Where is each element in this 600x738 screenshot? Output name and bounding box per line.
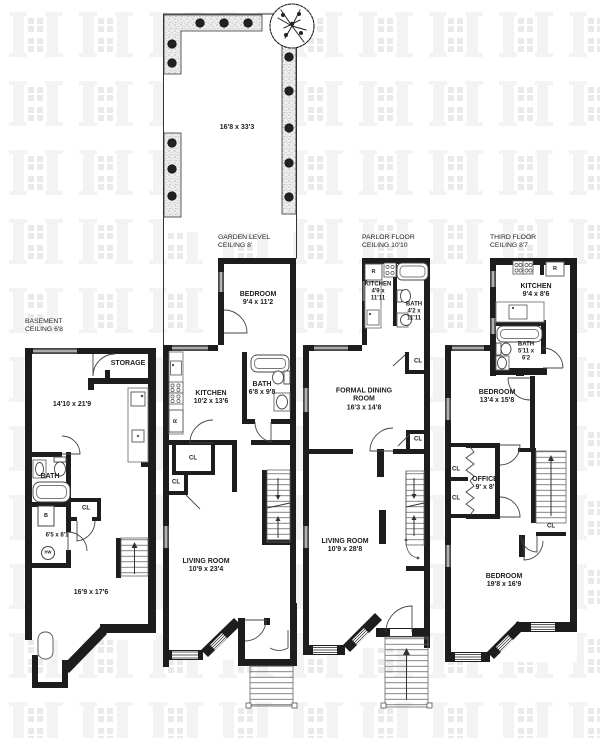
garden-kitchen-label: KITCHEN 10'2 x 13'6 [194, 390, 228, 407]
third-bedroom2-name: BEDROOM [486, 573, 523, 581]
basement-main-dims-label: 14'10 x 21'9 [53, 401, 91, 409]
garden-closet2-label: CL [172, 479, 180, 486]
third-kitchen-label: KITCHEN 9'4 x 8'6 [520, 283, 551, 300]
parlor-kitchen-label: KITCHEN 4'9 x 11'11 [365, 281, 392, 302]
basement-stairs [121, 538, 148, 576]
third-stairs [536, 451, 566, 523]
third-bath-dims2: 6'2 [518, 356, 534, 363]
basement-closet-label: CL [82, 505, 90, 512]
garden-bath-label: BATH 6'8 x 9'8 [249, 381, 276, 398]
garden-closet1-label: CL [189, 455, 197, 462]
third-bath-dims1: 5'11 x [518, 348, 534, 355]
third-kitchen-dims: 9'4 x 8'6 [520, 291, 551, 299]
parlor-living-name: LIVING ROOM [321, 538, 368, 546]
parlor-bath-dims2: 11'11 [406, 316, 422, 323]
third-office-label: OFFICE 9' x 8' [472, 476, 498, 493]
storage-label: STORAGE [111, 360, 146, 368]
parlor-bath-label: BATH 4'2 x 11'11 [406, 301, 422, 322]
parlor-refrigerator-label: R [372, 269, 376, 275]
third-kitchen-name: KITCHEN [520, 283, 551, 291]
parlor-title: PARLOR FLOOR [362, 234, 415, 242]
parlor-stoop-stairs [381, 637, 432, 708]
third-header: THIRD FLOOR CEILING 8'7 [490, 234, 536, 251]
third-office-name: OFFICE [472, 476, 498, 484]
garden-bath-dims: 6'8 x 9'8 [249, 389, 276, 397]
parlor-bath-dims1: 4'2 x [406, 308, 422, 315]
parlor-kitchen-name: KITCHEN [365, 281, 392, 288]
third-closet2-label: CL [452, 495, 460, 502]
basement-bath-label: BATH [41, 473, 60, 481]
third-bedroom1-dims: 13'4 x 15'8 [479, 397, 516, 405]
garden-kitchen-name: KITCHEN [194, 390, 228, 398]
garden-bedroom-name: BEDROOM [240, 291, 277, 299]
third-title: THIRD FLOOR [490, 234, 536, 242]
parlor-dining-label: FORMAL DINING ROOM 16'3 x 14'8 [336, 388, 392, 413]
third-office-dims: 9' x 8' [472, 484, 498, 492]
third-closet3-label: CL [547, 523, 555, 530]
third-ceiling: CEILING 8'7 [490, 242, 536, 250]
parlor-closet1-label: CL [414, 358, 422, 365]
garden-bedroom-dims: 9'4 x 11'2 [240, 299, 277, 307]
third-bedroom2-label: BEDROOM 19'8 x 16'9 [486, 573, 523, 590]
basement-entry-door [38, 632, 53, 659]
garden-title: GARDEN LEVEL [218, 234, 270, 242]
parlor-kitchen-dims2: 11'11 [365, 296, 392, 303]
garden-stoop-stairs [246, 666, 297, 708]
hot-water-label: HW [45, 551, 52, 556]
garden-header: GARDEN LEVEL CEILING 8' [218, 234, 270, 251]
parlor-bath-name: BATH [406, 301, 422, 308]
third-bath-name: BATH [518, 341, 534, 348]
tree-icon [270, 4, 314, 48]
garden-living-label: LIVING ROOM 10'9 x 23'4 [182, 558, 229, 575]
third-closet1-label: CL [452, 466, 460, 473]
basement-header: BASEMENT CEILING 6'8 [25, 318, 63, 335]
parlor-ceiling: CEILING 10'10 [362, 242, 415, 250]
floorplan-canvas: 16'8 x 33'3 BASEMENT CEILING 6'8 GARDEN … [0, 0, 600, 738]
garden-bath-name: BATH [249, 381, 276, 389]
floorplan-drawing [0, 0, 600, 738]
garden-living-dims: 10'9 x 23'4 [182, 566, 229, 574]
basement-rec-dims-label: 16'9 x 17'6 [74, 589, 108, 597]
boiler-label: B [44, 513, 48, 519]
garden-refrigerator-label: R [173, 419, 179, 423]
garden-ceiling: CEILING 8' [218, 242, 270, 250]
garden-bedroom-label: BEDROOM 9'4 x 11'2 [240, 291, 277, 308]
parlor-closet2-label: CL [414, 436, 422, 443]
garden-kitchen-dims: 10'2 x 13'6 [194, 398, 228, 406]
parlor-dining-name2: ROOM [336, 396, 392, 404]
parlor-dining-dims: 16'3 x 14'8 [336, 404, 392, 412]
third-bedroom2-dims: 19'8 x 16'9 [486, 581, 523, 589]
third-bath-label: BATH 5'11 x 6'2 [518, 341, 534, 362]
parlor-kitchen-dims1: 4'9 x [365, 288, 392, 295]
garden-stairs [267, 470, 290, 542]
parlor-header: PARLOR FLOOR CEILING 10'10 [362, 234, 415, 251]
basement-counter [128, 388, 148, 462]
basement-ceiling: CEILING 6'8 [25, 326, 63, 334]
third-bedroom1-name: BEDROOM [479, 389, 516, 397]
basement-title: BASEMENT [25, 318, 63, 326]
parlor-dining-name1: FORMAL DINING [336, 388, 392, 396]
basement-window [33, 349, 77, 353]
third-bedroom1-label: BEDROOM 13'4 x 15'8 [479, 389, 516, 406]
yard-dims-label: 16'8 x 33'3 [220, 124, 254, 132]
parlor-living-label: LIVING ROOM 10'9 x 28'8 [321, 538, 368, 555]
garden-living-name: LIVING ROOM [182, 558, 229, 566]
parlor-living-dims: 10'9 x 28'8 [321, 546, 368, 554]
third-refrigerator-label: R [553, 266, 557, 272]
mech-dims-label: 6'5 x 8'1 [46, 532, 69, 539]
